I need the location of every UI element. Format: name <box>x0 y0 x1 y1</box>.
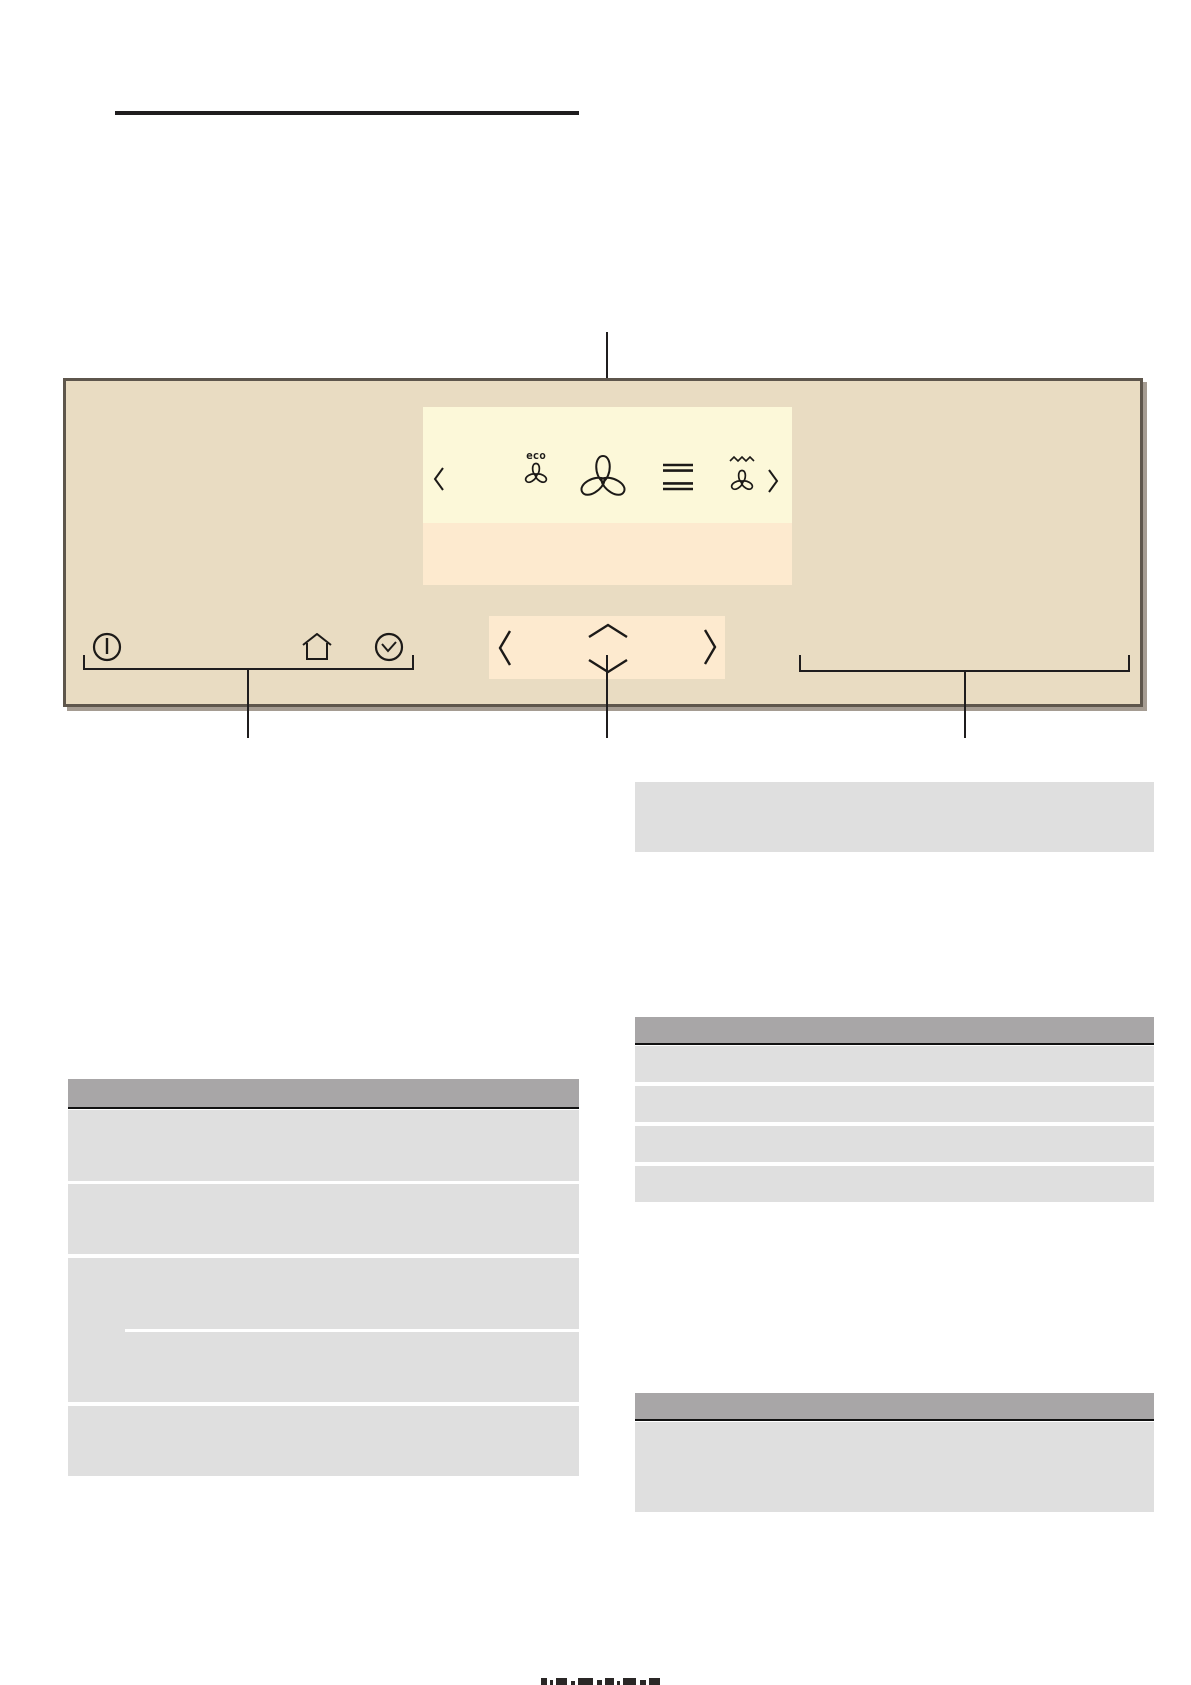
chevron-down-icon <box>587 658 629 674</box>
bracket-left-tick-b <box>412 655 414 669</box>
display-screen: eco <box>423 407 792 523</box>
timer-clock-icon <box>373 631 405 663</box>
chevron-left-icon <box>497 629 513 667</box>
table-row <box>635 1046 1154 1082</box>
page-title <box>115 70 579 110</box>
heading-underline <box>115 111 579 115</box>
bracket-left-tick-a <box>83 655 85 669</box>
chevron-up-icon <box>587 623 629 639</box>
fan-icon <box>575 451 631 505</box>
callout-line-center <box>606 655 608 738</box>
bracket-right-tick-b <box>1128 655 1130 670</box>
table-header-rule <box>635 1043 1154 1045</box>
chevron-left-icon <box>433 467 445 491</box>
home-icon <box>302 633 332 661</box>
document-page: eco <box>0 0 1191 1685</box>
table-row <box>68 1184 579 1254</box>
note-box <box>635 782 1154 852</box>
table-row <box>68 1406 579 1476</box>
table-row <box>635 1422 1154 1512</box>
chevron-right-icon <box>767 469 779 493</box>
table-header <box>635 1017 1154 1043</box>
table-header <box>635 1393 1154 1419</box>
table-row <box>68 1110 579 1181</box>
top-bottom-heat-icon <box>662 461 694 493</box>
power-icon <box>91 631 123 663</box>
table-header-rule <box>635 1419 1154 1421</box>
bracket-right-tick-a <box>799 655 801 670</box>
display-status-strip <box>423 523 792 585</box>
table-header <box>68 1079 579 1107</box>
eco-fan-icon: eco <box>517 451 555 487</box>
callout-line-left <box>247 668 249 738</box>
table-row <box>635 1086 1154 1122</box>
table-header-rule <box>68 1107 579 1109</box>
table-row <box>635 1126 1154 1162</box>
control-panel: eco <box>63 378 1143 707</box>
callout-line-right <box>964 670 966 738</box>
table-row <box>635 1166 1154 1202</box>
chevron-right-icon <box>702 628 718 666</box>
grill-fan-icon <box>727 455 757 495</box>
eco-mode-label: eco <box>517 451 555 461</box>
table-row-indented-separator <box>125 1329 579 1332</box>
